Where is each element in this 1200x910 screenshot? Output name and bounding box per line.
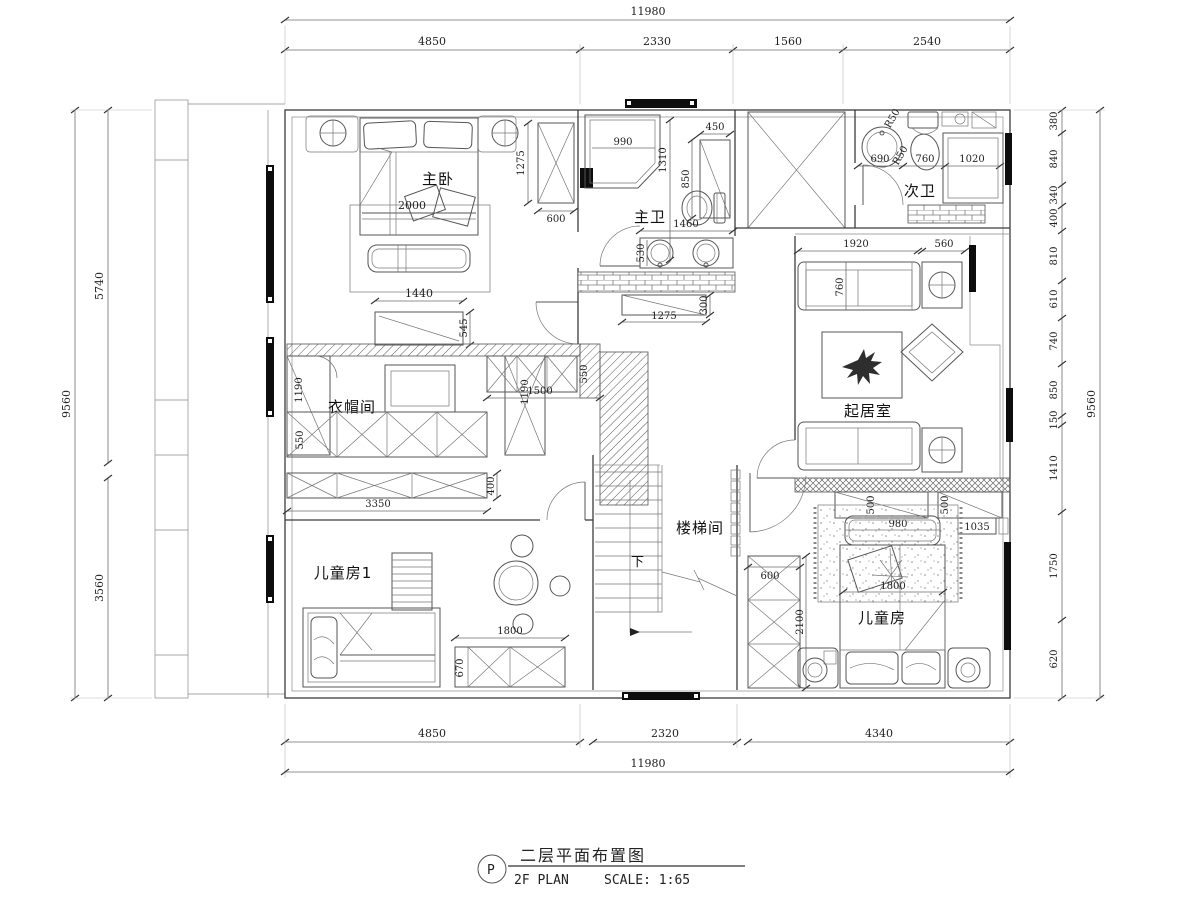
dimension-chain-bottom: 4850 2320 4340 11980 bbox=[281, 704, 1014, 778]
dim-top-seg3: 1560 bbox=[774, 35, 802, 48]
floor-plan-canvas: 11980 4850 2330 1560 2540 4850 2320 4340… bbox=[0, 0, 1200, 910]
dim-top-seg1: 4850 bbox=[418, 35, 446, 48]
side-table-bottom bbox=[922, 428, 962, 472]
title-en: 2F PLAN bbox=[514, 873, 569, 888]
window-right-2 bbox=[1006, 388, 1013, 442]
dim-bottom-overall: 11980 bbox=[631, 757, 666, 770]
dim-right-seg3: 340 bbox=[1049, 185, 1060, 204]
coffee-table bbox=[822, 332, 902, 398]
label-kids-room-1: 儿童房1 bbox=[314, 564, 373, 582]
room-second-bath: R50 R50 690 760 1020 次卫 bbox=[854, 107, 1004, 228]
dim-kids1-670: 670 bbox=[455, 658, 466, 677]
room-kids1: 儿童房1 1800 670 bbox=[285, 482, 593, 687]
label-master-bath: 主卫 bbox=[634, 208, 666, 226]
dim-shower-990: 990 bbox=[613, 137, 632, 148]
dim-kids1-1800: 1800 bbox=[497, 626, 522, 637]
shower-second-bath bbox=[943, 133, 1003, 203]
dim-right-seg5: 810 bbox=[1049, 246, 1060, 265]
bedroom-wardrobe bbox=[538, 123, 574, 203]
label-living: 起居室 bbox=[844, 402, 892, 420]
label-kids-room: 儿童房 bbox=[858, 609, 906, 627]
dim-sofa-depth: 760 bbox=[835, 277, 846, 296]
dim-r50-1: R50 bbox=[883, 107, 903, 130]
cloak-left-wardrobe bbox=[287, 356, 330, 455]
window-left-3 bbox=[266, 535, 274, 603]
dim-bath-depth: 1310 bbox=[658, 147, 669, 172]
cloak-bottom-wardrobe bbox=[287, 412, 487, 457]
dim-wardrobe-height: 1275 bbox=[516, 150, 527, 175]
dim-cloak-1190-left: 1190 bbox=[294, 377, 305, 402]
dim-shower-1020: 1020 bbox=[959, 154, 984, 165]
dimension-chain-right: 380 840 340 400 810 610 740 850 150 1410… bbox=[1014, 107, 1105, 701]
dim-stair-cab-2100: 2100 bbox=[795, 609, 806, 634]
dim-right-seg6: 610 bbox=[1049, 289, 1060, 308]
dim-left-overall: 9560 bbox=[60, 390, 73, 418]
dim-kids-rug: 980 bbox=[888, 519, 907, 530]
dim-right-overall: 9560 bbox=[1085, 390, 1098, 418]
dim-toilet-760: 760 bbox=[915, 154, 934, 165]
dimension-chain-left: 9560 5740 3560 bbox=[60, 107, 152, 701]
master-bed bbox=[360, 118, 478, 235]
window-left-1 bbox=[266, 165, 274, 303]
room-master-bath: 990 1310 450 850 主卫 1460 530 300 1275 bbox=[578, 110, 737, 344]
label-master-bedroom: 主卧 bbox=[422, 170, 454, 188]
room-living: 1920 560 760 起居室 bbox=[757, 236, 1010, 492]
dim-dresser-width: 1440 bbox=[405, 287, 433, 300]
cloak-north-wall bbox=[287, 344, 580, 356]
dim-right-seg2: 840 bbox=[1049, 149, 1060, 168]
dim-wardrobe-width: 600 bbox=[546, 214, 565, 225]
dim-side-560: 560 bbox=[934, 239, 953, 250]
dim-top-seg2: 2330 bbox=[643, 35, 671, 48]
dim-right-seg7: 740 bbox=[1049, 331, 1060, 350]
bedroom-rug bbox=[350, 205, 490, 292]
dim-bed-width: 2000 bbox=[398, 199, 426, 212]
dim-sink-690: 690 bbox=[870, 154, 889, 165]
dim-bottom-seg3: 4340 bbox=[865, 727, 893, 740]
dim-right-seg1: 380 bbox=[1049, 111, 1060, 130]
bath-wall-brick bbox=[578, 272, 735, 292]
dim-left-seg2: 3560 bbox=[93, 574, 106, 602]
dim-sofa-1920: 1920 bbox=[843, 239, 868, 250]
label-stairs-down: 下 bbox=[631, 555, 645, 570]
dim-right-seg10: 1410 bbox=[1049, 455, 1060, 480]
window-right-3 bbox=[1004, 542, 1011, 650]
dim-row-550: 550 bbox=[295, 430, 306, 449]
dim-corridor-1500: 1500 bbox=[527, 386, 552, 397]
living-door-arc bbox=[757, 440, 795, 478]
dim-vanity-width: 1460 bbox=[673, 219, 698, 230]
table-plant bbox=[842, 349, 882, 385]
dim-kids-1035: 1035 bbox=[964, 522, 989, 533]
title-scale: SCALE: 1:65 bbox=[604, 873, 690, 888]
kids1-cabinet bbox=[455, 647, 565, 687]
dim-lower-depth: 300 bbox=[699, 295, 710, 314]
window-top bbox=[625, 99, 697, 108]
dim-left-seg1: 5740 bbox=[93, 272, 106, 300]
living-south-hatch bbox=[795, 478, 1010, 492]
dim-right-seg8: 850 bbox=[1049, 380, 1060, 399]
kids1-door-arc bbox=[547, 482, 585, 520]
kids-nightstand-right bbox=[948, 648, 990, 688]
dim-right-seg11: 1750 bbox=[1049, 553, 1060, 578]
label-second-bath: 次卫 bbox=[904, 182, 936, 200]
dim-lower-width: 1275 bbox=[651, 311, 676, 322]
window-bottom bbox=[622, 692, 700, 700]
dim-row-3350: 3350 bbox=[365, 499, 390, 510]
dim-cabinet-850: 850 bbox=[681, 169, 692, 188]
sofa-bottom bbox=[798, 422, 920, 470]
bedroom-door-arc bbox=[536, 302, 578, 344]
stair-walk-arrow bbox=[630, 628, 640, 636]
bath-door-arc bbox=[600, 226, 640, 266]
kids-nightstand-left bbox=[798, 648, 838, 688]
dim-right-seg12: 620 bbox=[1049, 649, 1060, 668]
second-bath-brick bbox=[908, 205, 985, 223]
side-table-top bbox=[922, 262, 962, 308]
title-block: P 二层平面布置图 2F PLAN SCALE: 1:65 bbox=[478, 846, 745, 888]
title-mark: P bbox=[487, 863, 495, 878]
window-right-1 bbox=[1005, 133, 1012, 185]
living-window-bar bbox=[969, 245, 976, 292]
dim-right-seg9: 150 bbox=[1049, 410, 1060, 429]
shower-master bbox=[585, 115, 660, 188]
vanity-master bbox=[640, 238, 733, 268]
window-left-2 bbox=[266, 337, 274, 417]
stair-break-line bbox=[662, 570, 737, 596]
dim-cab-550: 550 bbox=[579, 364, 590, 383]
kids1-poufs bbox=[494, 535, 570, 634]
dim-kids-bed: 1800 bbox=[880, 581, 905, 592]
room-master-bedroom: 主卧 2000 1440 545 1275 600 bbox=[306, 116, 593, 348]
cloak-door-arc bbox=[315, 356, 337, 378]
label-stairwell: 楼梯间 bbox=[676, 519, 724, 537]
dim-top-seg4: 2540 bbox=[913, 35, 941, 48]
hall-wall-hatch bbox=[600, 352, 648, 505]
sofa-top bbox=[798, 262, 920, 310]
cloak-island bbox=[385, 365, 455, 412]
second-bath-door-arc bbox=[863, 165, 903, 205]
dim-bottom-seg2: 2320 bbox=[651, 727, 679, 740]
room-kids: 500 500 1035 980 1800 儿童房 bbox=[798, 492, 1008, 688]
dim-stair-cab-600: 600 bbox=[760, 571, 779, 582]
dim-row-400: 400 bbox=[486, 476, 497, 495]
kids1-bed bbox=[303, 608, 440, 687]
lounge-chair bbox=[901, 324, 963, 381]
stair-wall-squares bbox=[731, 470, 740, 556]
floorplan-page: 11980 4850 2330 1560 2540 4850 2320 4340… bbox=[0, 0, 1200, 910]
title-cn: 二层平面布置图 bbox=[520, 846, 646, 865]
dim-right-seg4: 400 bbox=[1049, 208, 1060, 227]
dresser bbox=[375, 312, 463, 345]
dim-r50-2: R50 bbox=[891, 144, 911, 167]
dim-top-overall: 11980 bbox=[631, 5, 666, 18]
dim-bottom-seg1: 4850 bbox=[418, 727, 446, 740]
hall-cabinet-row bbox=[287, 473, 487, 498]
kids1-ladder bbox=[392, 553, 432, 610]
dim-vanity-depth: 530 bbox=[636, 243, 647, 262]
dim-dresser-depth: 545 bbox=[459, 318, 470, 337]
dim-niche-450: 450 bbox=[705, 122, 724, 133]
dimension-chain-top: 11980 4850 2330 1560 2540 bbox=[281, 5, 1014, 104]
